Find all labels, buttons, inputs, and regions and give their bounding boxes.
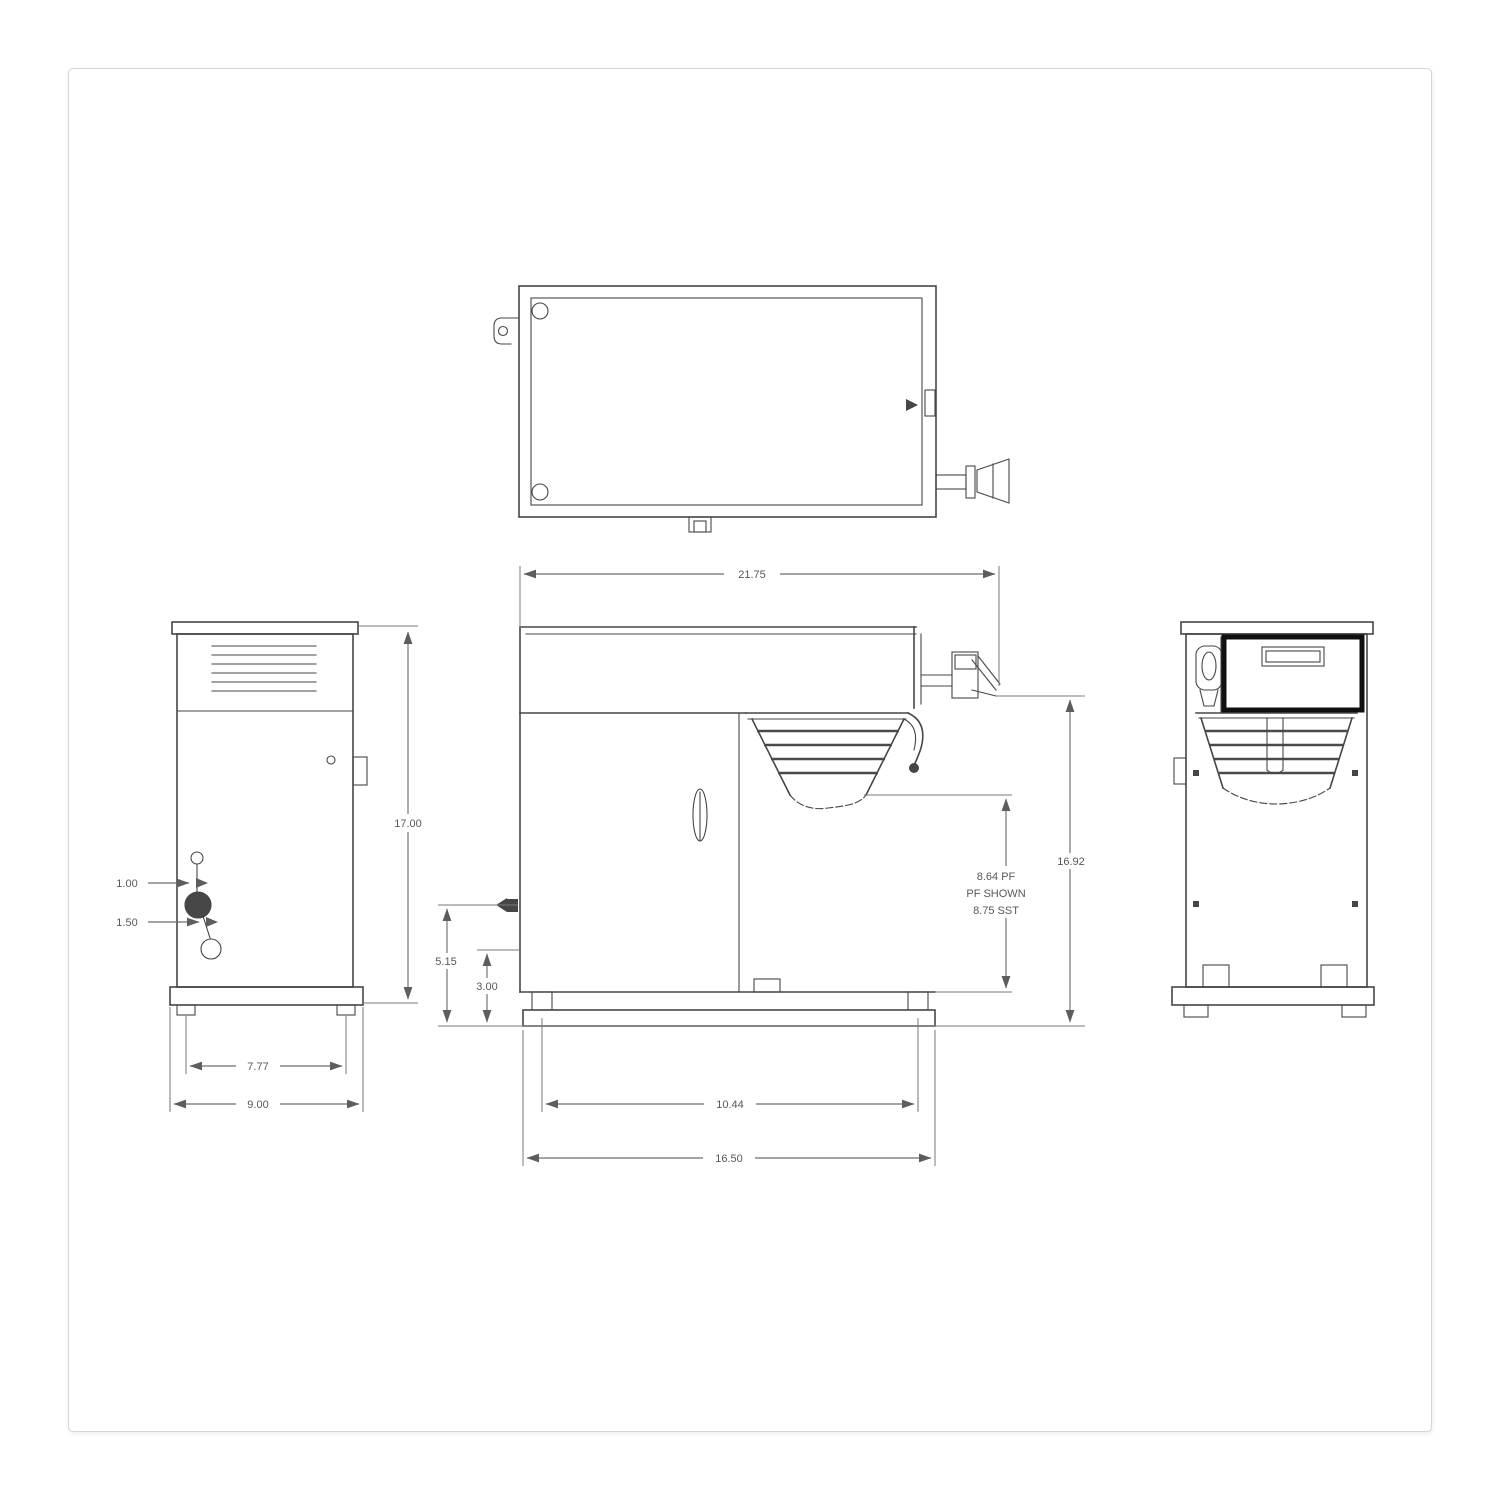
inlet-valve [185, 852, 221, 959]
door-handle [693, 789, 707, 841]
leg [1321, 965, 1347, 987]
top-view-body [519, 286, 936, 517]
base-plate [170, 987, 363, 1005]
dim-label-overall-height: 16.92 [1057, 856, 1085, 868]
top-view [494, 286, 1009, 532]
screw-dot [1352, 770, 1358, 776]
control-panel [1224, 637, 1362, 710]
technical-drawing: 21.75 17.00 1.00 1.50 7.77 9.00 [0, 0, 1500, 1500]
foot [1342, 1005, 1366, 1017]
rear-tab [689, 517, 711, 532]
corner-hole [532, 484, 548, 500]
top-view-inner-edge [531, 298, 922, 505]
leg [908, 992, 928, 1010]
foot [337, 1005, 355, 1015]
dim-fitting-offset-bottom: 1.50 [116, 917, 218, 929]
latch-plate [925, 390, 935, 416]
dim-label-top-width: 21.75 [738, 569, 766, 581]
dim-inlet-height: 5.15 [427, 909, 467, 1022]
side-handle [1174, 758, 1186, 784]
dim-front-base-width: 16.50 [527, 1150, 931, 1166]
top-cap [1181, 622, 1373, 634]
faucet-top [936, 459, 1009, 503]
dim-label-inlet-height: 5.15 [435, 956, 456, 968]
dim-side-base-depth: 9.00 [174, 1096, 359, 1112]
dim-label-lower-clearance: 3.00 [476, 981, 497, 993]
dim-label-front-feet-spacing: 10.44 [716, 1099, 744, 1111]
dim-label-fitting-offset-bottom: 1.50 [116, 917, 137, 929]
faucet-front [1196, 646, 1222, 706]
screw-dot [1193, 770, 1199, 776]
brew-funnel-front [1196, 713, 1357, 804]
dim-fitting-offset-top: 1.00 [116, 878, 208, 890]
dim-front-feet-spacing: 10.44 [546, 1096, 914, 1112]
dim-funnel-clearance: 8.64 PF PF SHOWN 8.75 SST [955, 799, 1037, 988]
product-image-canvas: 21.75 17.00 1.00 1.50 7.77 9.00 [0, 0, 1500, 1500]
dim-overall-height: 16.92 [1048, 700, 1094, 1022]
vent-grille [212, 646, 316, 691]
corner-hole [532, 303, 548, 319]
screw-dot [327, 756, 335, 764]
dim-lower-clearance: 3.00 [468, 954, 506, 1022]
base-plate [1172, 987, 1374, 1005]
screw-dot [1193, 901, 1199, 907]
brew-head [520, 627, 921, 992]
dim-label-side-base-depth: 9.00 [247, 1099, 268, 1111]
leg [1203, 965, 1229, 987]
front-view [1172, 622, 1374, 1017]
faucet-profile [921, 652, 1000, 698]
alignment-arrow-icon [906, 399, 918, 411]
brew-funnel [746, 713, 908, 809]
foot [1184, 1005, 1208, 1017]
dim-label-side-feet-spacing: 7.77 [247, 1061, 268, 1073]
dim-side-feet-spacing: 7.77 [190, 1058, 342, 1074]
funnel-handle-hook [904, 713, 923, 773]
top-cap [172, 622, 358, 634]
dim-label-funnel-clearance-3: 8.75 SST [973, 905, 1019, 917]
dim-label-funnel-clearance-2: PF SHOWN [966, 888, 1025, 900]
foot [177, 1005, 195, 1015]
decanter-rail-tab [754, 979, 780, 992]
dim-label-side-height: 17.00 [394, 818, 422, 830]
side-handle [353, 757, 367, 785]
dim-side-height: 17.00 [386, 632, 430, 999]
base-plate [523, 1010, 935, 1026]
side-view [170, 622, 367, 1015]
screw-dot [1352, 901, 1358, 907]
dim-label-funnel-clearance-1: 8.64 PF [977, 871, 1016, 883]
dim-top-width: 21.75 [524, 565, 995, 583]
side-view-body [177, 634, 353, 987]
dim-label-fitting-offset-top: 1.00 [116, 878, 137, 890]
hinge-hook [494, 318, 519, 344]
extension-lines [170, 566, 1085, 1166]
dim-label-front-base-width: 16.50 [715, 1153, 743, 1165]
profile-view [496, 627, 1000, 1026]
leg [532, 992, 552, 1010]
